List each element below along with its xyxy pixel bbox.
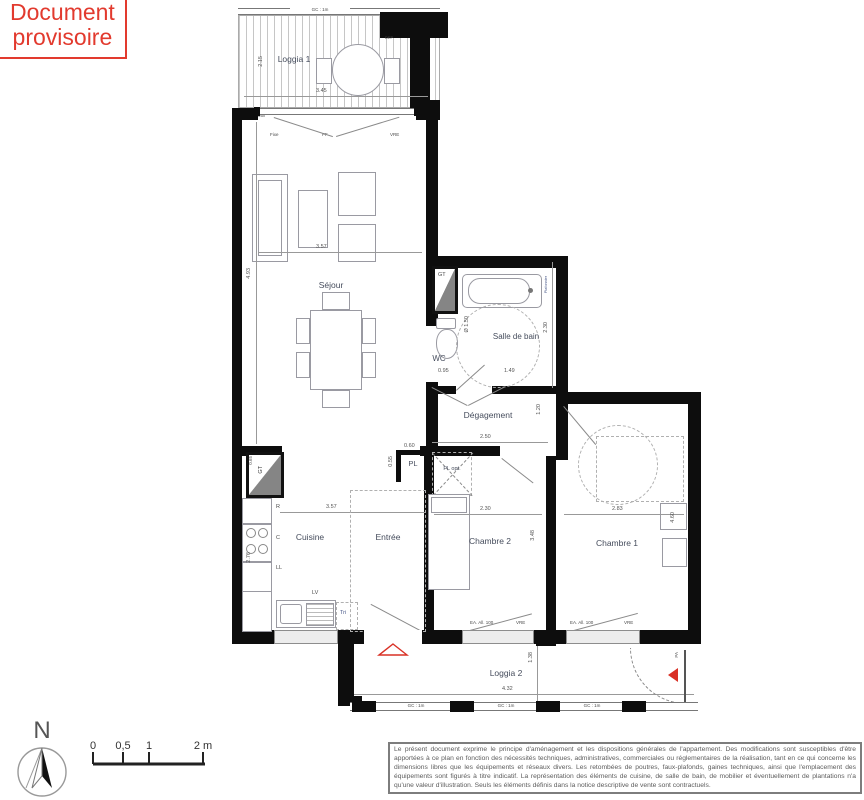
dimension: 3.57 bbox=[316, 244, 327, 250]
door-panel bbox=[684, 650, 686, 704]
pa-label: PA bbox=[674, 652, 679, 658]
scale-tick-05: 0,5 bbox=[115, 740, 130, 752]
dimension-line bbox=[258, 252, 422, 253]
window-sill bbox=[462, 630, 534, 644]
guardrail-label: GC : 1m bbox=[566, 703, 618, 708]
dining-chair bbox=[296, 318, 310, 344]
guardrail-label: GC : 1m bbox=[390, 703, 442, 708]
wall bbox=[546, 456, 556, 634]
stamp-line2: provisoire bbox=[10, 25, 115, 50]
fridge bbox=[242, 498, 272, 524]
floor-plan: GC : 1m DEP Loggia 1 2.15 3.45 Seuil bbox=[230, 4, 708, 720]
wall bbox=[232, 108, 242, 644]
window-label-vre: VRE bbox=[390, 132, 399, 137]
nightstand bbox=[662, 538, 687, 567]
sink-drainer bbox=[306, 603, 334, 626]
coffee-table bbox=[298, 190, 328, 248]
window-label-ea: EA. All. 100 bbox=[470, 620, 493, 625]
dimension-line bbox=[354, 694, 694, 695]
wall bbox=[396, 450, 432, 455]
dimension: 2.83 bbox=[612, 506, 623, 512]
dimension: 3.45 bbox=[316, 88, 327, 94]
loggia1-chair bbox=[384, 58, 400, 84]
loggia1-table bbox=[332, 44, 384, 96]
sofa-cushion bbox=[258, 180, 282, 256]
burner bbox=[258, 544, 268, 554]
room-label-loggia1: Loggia 1 bbox=[264, 54, 324, 64]
room-label-wc: WC bbox=[426, 354, 452, 363]
dimension: 4.32 bbox=[502, 686, 513, 692]
wall bbox=[562, 392, 700, 404]
dimension: 2.50 bbox=[480, 434, 491, 440]
wall bbox=[536, 701, 560, 712]
closet-label-pl: PL bbox=[402, 459, 424, 468]
dimension: 1.20 bbox=[536, 404, 542, 415]
floor-plan-page: Document provisoire GC : 1m DEP Loggia 1… bbox=[0, 0, 864, 800]
dimension: Ø 1.50 bbox=[464, 316, 470, 333]
dimension: 3.57 bbox=[326, 504, 337, 510]
room-label-chambre1: Chambre 1 bbox=[582, 538, 652, 548]
wall bbox=[688, 392, 701, 642]
door-leaf bbox=[468, 387, 504, 406]
wall bbox=[556, 256, 568, 402]
closet-label-pl-opt: PL opt. bbox=[432, 466, 472, 472]
room-label-chambre2: Chambre 2 bbox=[458, 536, 522, 546]
sink-bowl bbox=[280, 604, 302, 624]
room-label-sdb: Salle de bain bbox=[470, 332, 562, 341]
door-leaf bbox=[501, 458, 533, 483]
tri-label: Tri bbox=[340, 610, 346, 616]
dimension-line bbox=[552, 262, 553, 388]
legal-disclaimer: Le présent document exprime le principe … bbox=[388, 742, 862, 794]
dimension-line bbox=[432, 442, 548, 443]
window-swing-line bbox=[274, 117, 333, 137]
dimension: 2.15 bbox=[258, 56, 264, 67]
dining-chair bbox=[296, 352, 310, 378]
plafonnier-label: Plafonnier bbox=[544, 276, 548, 293]
dimension: 1.38 bbox=[528, 652, 534, 663]
window-sill bbox=[566, 630, 640, 644]
wall bbox=[536, 630, 556, 646]
bathtub-inner bbox=[468, 278, 530, 304]
dimension: 0.95 bbox=[438, 368, 449, 374]
dimension-line bbox=[256, 122, 257, 444]
gt-label: GT bbox=[258, 466, 264, 474]
window-label-fixe: Fixe bbox=[270, 132, 279, 137]
scale-bar: 0 0,5 1 2 m bbox=[85, 738, 213, 778]
room-label-sejour: Séjour bbox=[296, 280, 366, 290]
wall bbox=[396, 450, 401, 482]
wall bbox=[338, 640, 354, 702]
sejour-window bbox=[260, 108, 414, 115]
stamp-line1: Document bbox=[10, 0, 115, 25]
dimension-line bbox=[244, 96, 428, 97]
window-label-ea: EA. All. 100 bbox=[570, 620, 593, 625]
dining-chair bbox=[322, 390, 350, 408]
room-label-cuisine: Cuisine bbox=[280, 532, 340, 542]
dimension-line bbox=[434, 514, 542, 515]
burner bbox=[246, 528, 256, 538]
provisional-stamp: Document provisoire bbox=[0, 0, 127, 59]
guardrail-label: GC : 1m bbox=[290, 7, 350, 12]
dimension: 2.76 bbox=[246, 552, 252, 563]
wall bbox=[450, 701, 474, 712]
fridge-label: R bbox=[276, 504, 280, 510]
dimension: 0.60 bbox=[404, 443, 415, 449]
dining-chair bbox=[362, 352, 376, 378]
wall bbox=[352, 701, 376, 712]
dining-chair bbox=[322, 292, 350, 310]
washing-machine bbox=[242, 562, 272, 592]
wall bbox=[622, 701, 646, 712]
window-label-vre: VRE bbox=[516, 620, 525, 625]
dimension: 0.55 bbox=[388, 456, 394, 467]
dishwasher-label: LV bbox=[312, 590, 318, 596]
access-marker-icon bbox=[376, 642, 410, 658]
bed-optional bbox=[596, 436, 684, 502]
access-arrow-icon bbox=[668, 668, 678, 682]
dimension: 4.93 bbox=[246, 268, 252, 279]
guardrail-label: GC : 1m bbox=[480, 703, 532, 708]
toilet-tank bbox=[436, 318, 456, 329]
entree-zone bbox=[350, 490, 426, 632]
dimension-line bbox=[564, 514, 684, 515]
dep-label: DEP bbox=[385, 35, 393, 40]
room-label-loggia2: Loggia 2 bbox=[466, 668, 546, 678]
room-label-entree: Entrée bbox=[358, 532, 418, 542]
bathtub-faucet bbox=[528, 288, 533, 293]
door-leaf bbox=[563, 406, 596, 445]
window-sill bbox=[274, 630, 338, 644]
north-label: N bbox=[33, 717, 50, 744]
scale-tick-0: 0 bbox=[90, 740, 96, 752]
dimension: 2.30 bbox=[480, 506, 491, 512]
armchair bbox=[338, 224, 376, 262]
scale-tick-1: 1 bbox=[146, 740, 152, 752]
armchair bbox=[338, 172, 376, 216]
scale-tick-2: 2 m bbox=[194, 740, 212, 752]
washer-label: LL bbox=[276, 565, 282, 571]
dimension: 2.30 bbox=[543, 322, 549, 333]
dimension: 0.65 bbox=[248, 456, 253, 465]
burner bbox=[258, 528, 268, 538]
dimension: 4.60 bbox=[670, 512, 676, 523]
dining-chair bbox=[362, 318, 376, 344]
north-arrow-icon: N bbox=[14, 712, 70, 800]
dimension: 1.49 bbox=[504, 368, 515, 374]
bed-pillow bbox=[431, 497, 467, 513]
dimension: 3.48 bbox=[530, 530, 536, 541]
gt-label: GT bbox=[438, 272, 446, 278]
window-label-vre: VRE bbox=[624, 620, 633, 625]
dining-table bbox=[310, 310, 362, 390]
room-label-degagement: Dégagement bbox=[448, 410, 528, 420]
